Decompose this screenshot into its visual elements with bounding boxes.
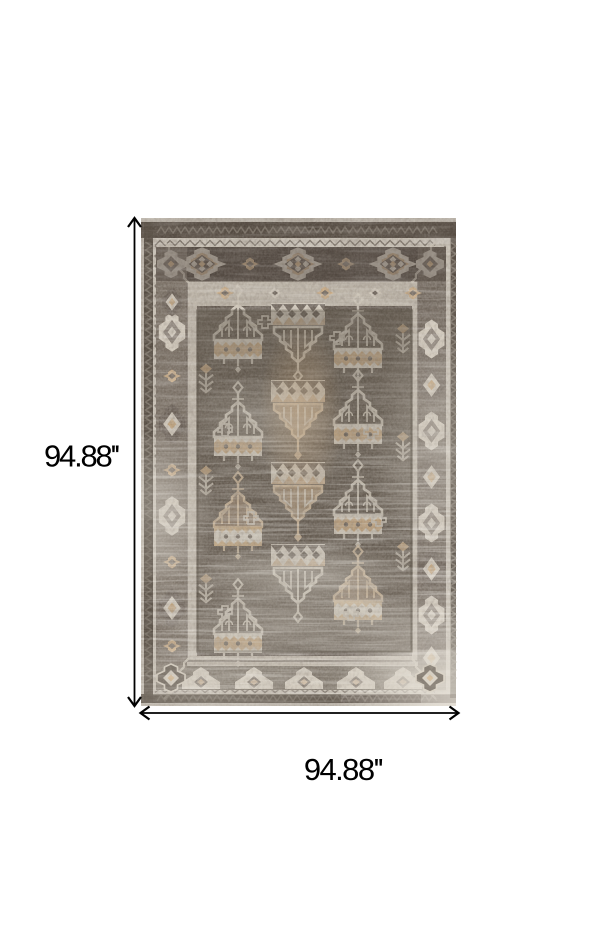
svg-text:94.88'': 94.88'' [304, 752, 383, 787]
svg-text:94.88'': 94.88'' [44, 439, 119, 474]
